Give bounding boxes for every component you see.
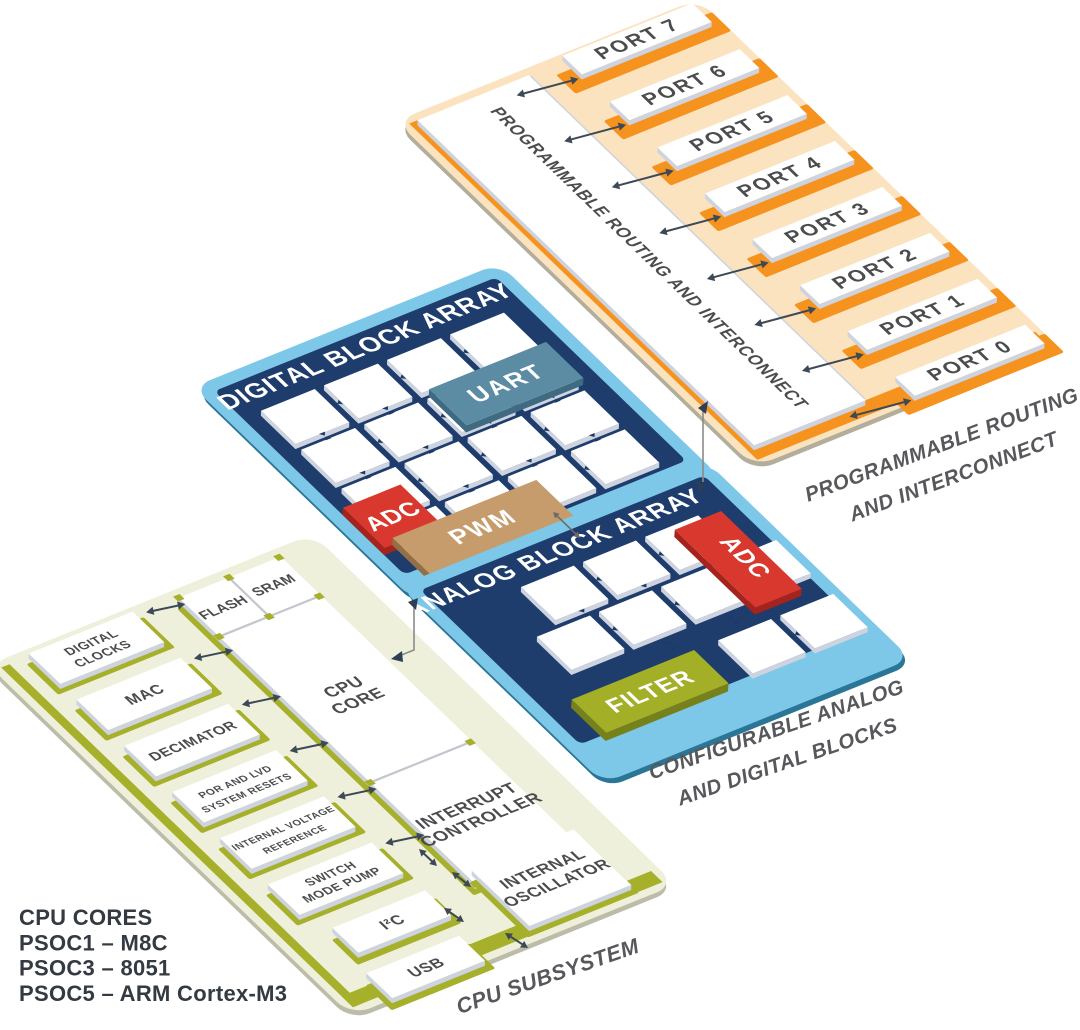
svg-text:PSOC3 – 8051: PSOC3 – 8051 <box>19 956 171 981</box>
svg-text:PSOC5 – ARM Cortex-M3: PSOC5 – ARM Cortex-M3 <box>19 981 287 1006</box>
svg-text:PSOC1 – M8C: PSOC1 – M8C <box>19 930 168 955</box>
svg-text:CPU CORES: CPU CORES <box>19 905 153 930</box>
